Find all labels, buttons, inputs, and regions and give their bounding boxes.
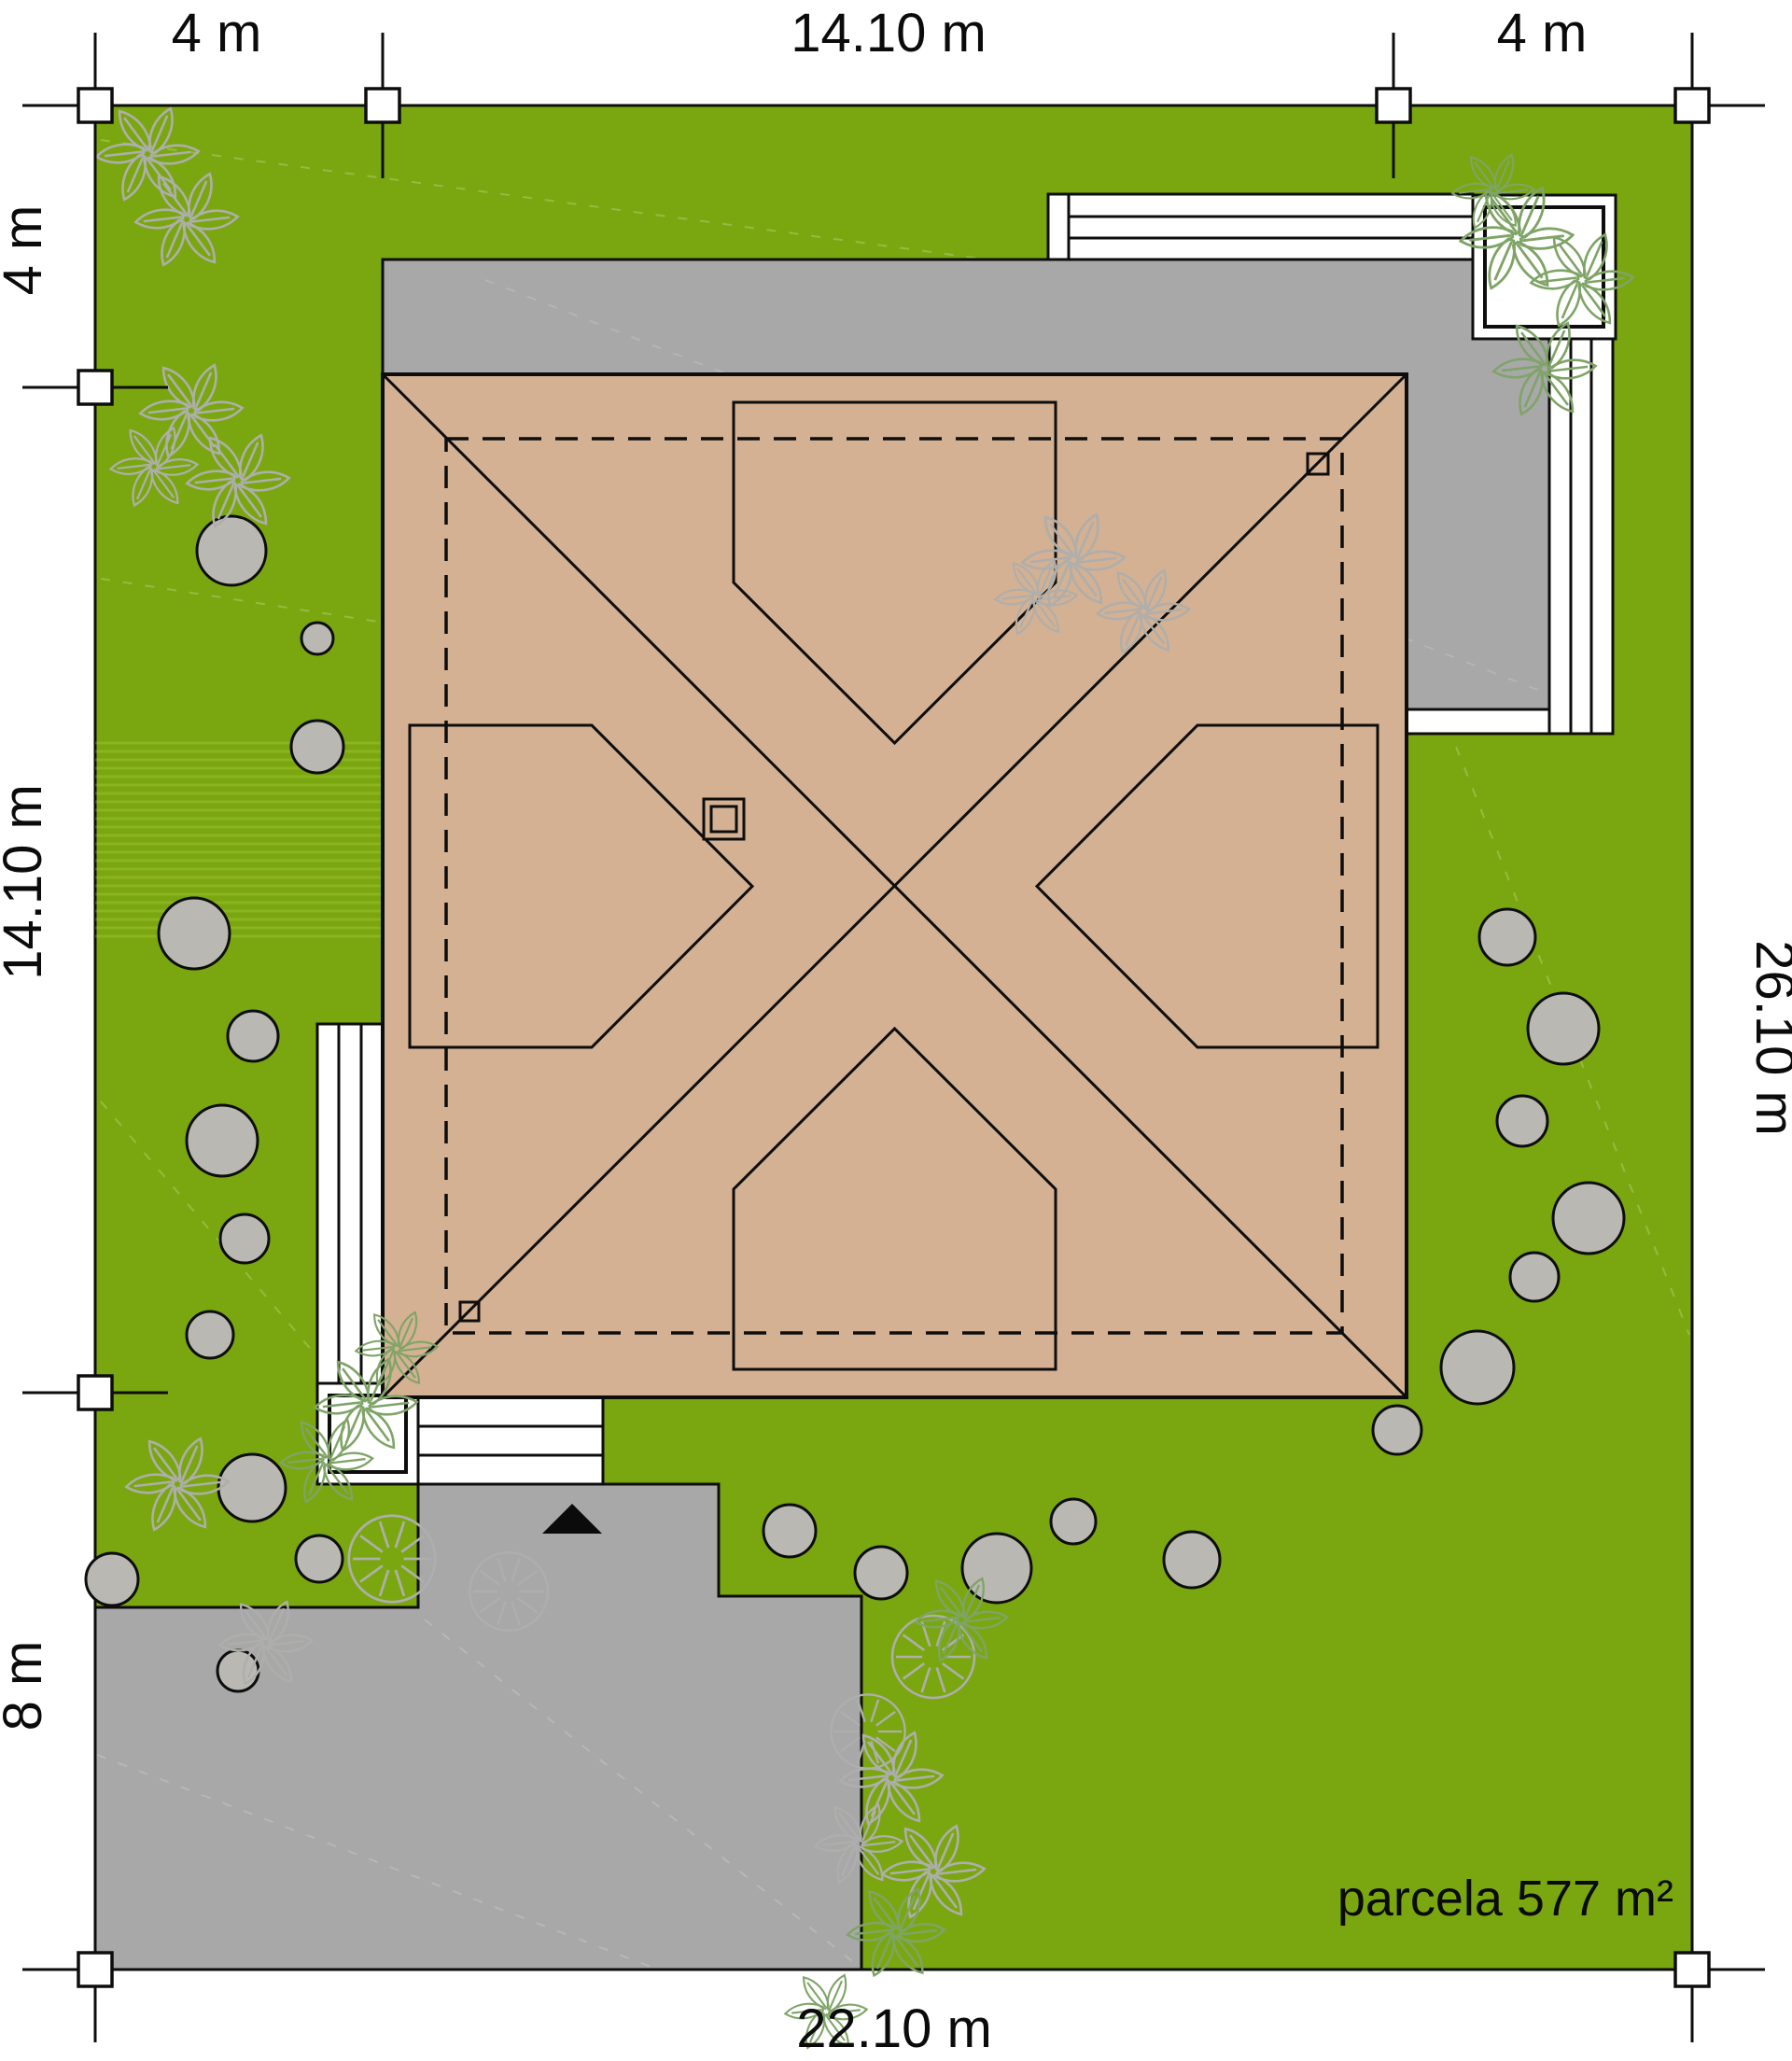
- dim-top-center: 14.10 m: [791, 3, 987, 63]
- terrace-top: [1048, 194, 1473, 259]
- dim-left-middle: 14.10 m: [0, 784, 53, 980]
- tree: [159, 898, 230, 969]
- dim-left-top: 4 m: [0, 205, 53, 296]
- tree: [1497, 1096, 1547, 1146]
- parcel-area-label: parcela 577 m²: [1337, 1871, 1673, 1927]
- tree: [86, 1553, 138, 1605]
- tree: [855, 1547, 907, 1599]
- tree: [763, 1505, 816, 1557]
- dim-right: 26.10 m: [1744, 940, 1792, 1136]
- dim-left-bottom: 8 m: [0, 1641, 53, 1732]
- tree: [1528, 993, 1599, 1064]
- tree: [1373, 1406, 1421, 1454]
- chimney: [704, 799, 744, 839]
- tree: [1164, 1532, 1220, 1588]
- tree: [296, 1535, 343, 1582]
- tree: [301, 623, 333, 654]
- terrace-bottom: [418, 1397, 603, 1484]
- tree: [217, 1650, 259, 1691]
- dim-bottom: 22.10 m: [796, 1998, 992, 2059]
- terrace-left: [317, 1024, 383, 1383]
- tree: [187, 1105, 258, 1176]
- site-plan-canvas: 4 m 14.10 m 4 m 4 m 14.10 m 8 m 26.10 m …: [0, 0, 1792, 2061]
- tree: [1479, 909, 1535, 965]
- dim-top-left: 4 m: [172, 3, 262, 63]
- tree: [187, 1311, 233, 1358]
- tree: [291, 721, 343, 773]
- tree: [962, 1534, 1031, 1603]
- lawn-striped-patch: [95, 737, 429, 943]
- house-roof: [383, 374, 1407, 1397]
- tree: [228, 1011, 278, 1061]
- tree: [218, 1454, 286, 1521]
- tree: [1441, 1331, 1514, 1404]
- tree: [1553, 1183, 1624, 1254]
- tree: [220, 1214, 269, 1263]
- dim-top-right: 4 m: [1497, 3, 1588, 63]
- tree: [1051, 1499, 1096, 1544]
- tree: [1510, 1253, 1559, 1301]
- tree: [197, 516, 266, 585]
